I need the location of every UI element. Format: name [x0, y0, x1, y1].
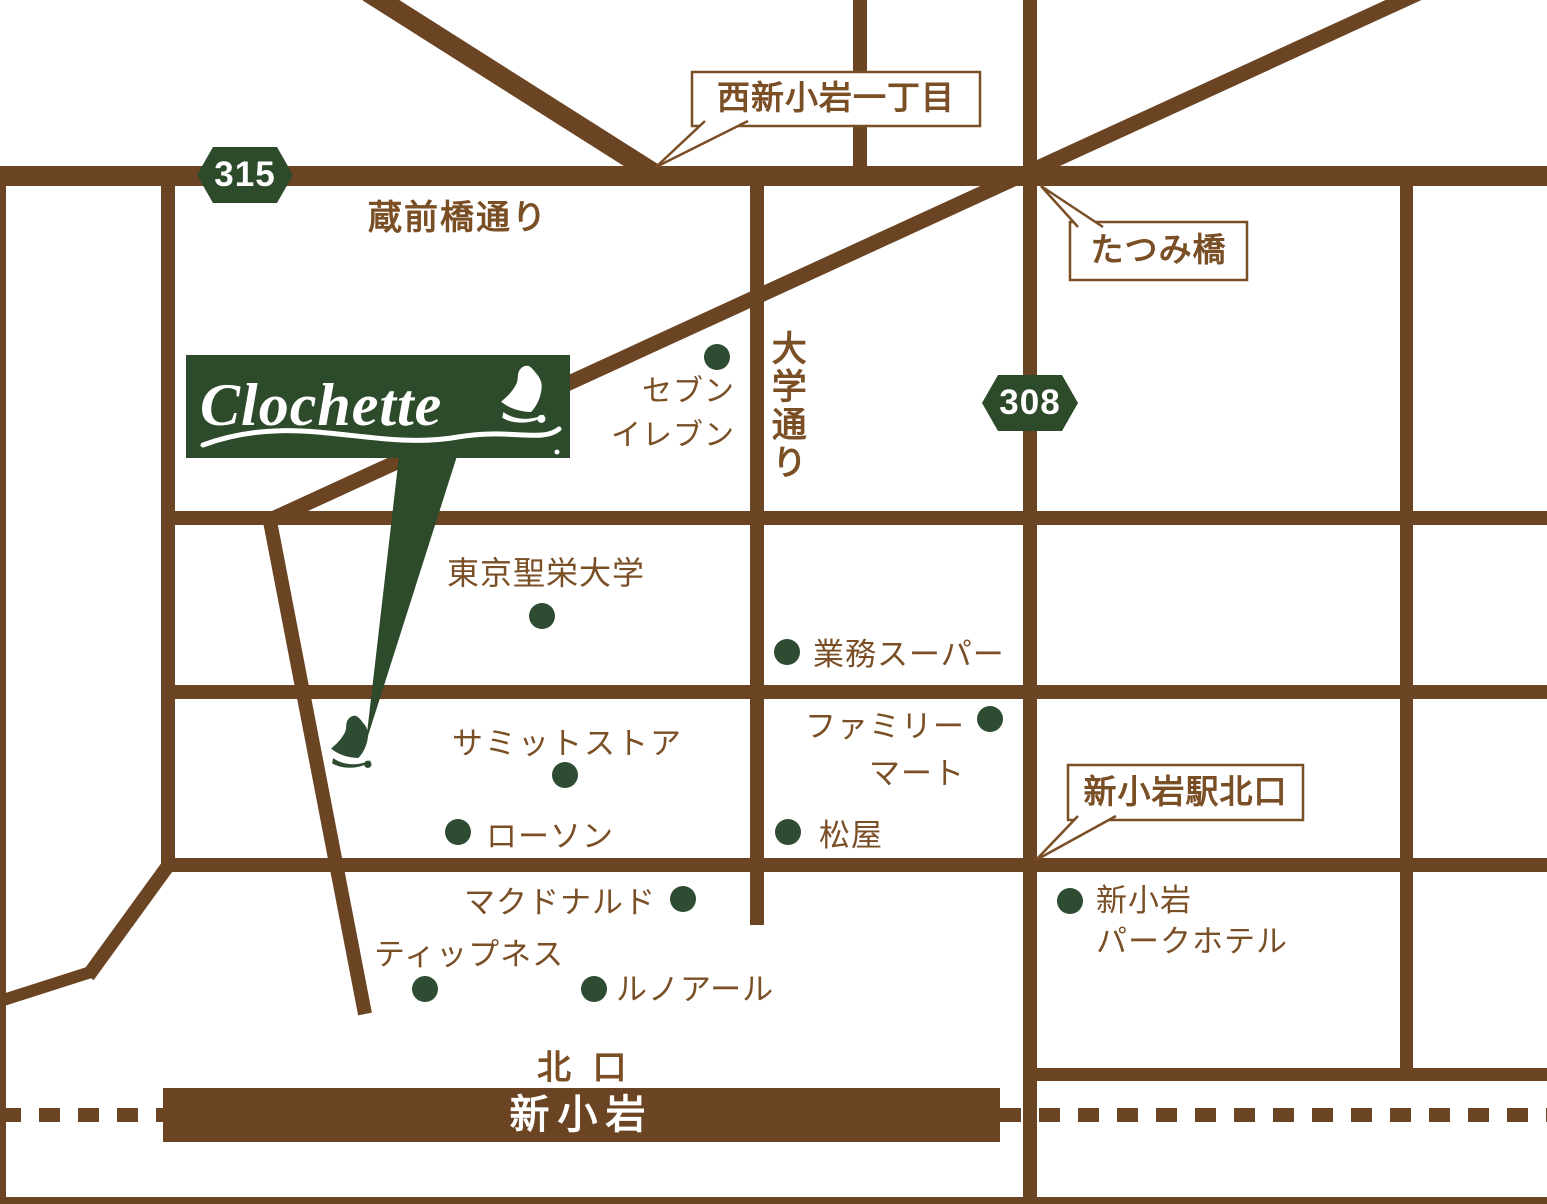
- road-diagonal-top-left: [368, 0, 655, 174]
- access-map: 蔵前橋通り 大学通り 315 308 西新小岩一丁目 たつみ橋 新小岩駅北口 C…: [0, 0, 1547, 1204]
- logo-wordmark: Clochette: [200, 368, 442, 443]
- park-hotel-line1: 新小岩: [1096, 883, 1192, 918]
- landmark-label-lawson: ローソン: [486, 818, 614, 857]
- landmark-label-summit-store: サミットストア: [452, 725, 683, 764]
- seven-eleven-line2: イレブン: [611, 419, 735, 452]
- callout-tail-north-exit: [1036, 816, 1116, 860]
- landmark-label-matsuya: 松屋: [819, 817, 883, 856]
- landmark-label-renoir: ルノアール: [616, 971, 774, 1010]
- landmark-dot-lawson: [445, 819, 471, 845]
- road-bottom-edge: [0, 1197, 1547, 1204]
- road-horizontal-2: [165, 511, 1547, 525]
- station-name: 新小岩: [163, 1088, 1000, 1142]
- landmark-label-gyomu-super: 業務スーパー: [813, 636, 1005, 675]
- road-horizontal-5: [1030, 1068, 1547, 1081]
- landmark-label-tipness: ティップネス: [374, 936, 564, 975]
- landmark-dot-mcdonalds: [670, 886, 696, 912]
- landmark-dot-renoir: [581, 976, 607, 1002]
- logo-dot: [555, 450, 560, 455]
- road-vertical-left: [161, 166, 175, 872]
- landmark-dot-gyomu-super: [774, 639, 800, 665]
- road-bend-lower-left-2: [0, 971, 94, 1003]
- road-left-edge: [0, 166, 6, 1204]
- landmark-dot-tipness: [412, 976, 438, 1002]
- landmark-dot-seven-eleven: [704, 344, 730, 370]
- street-label-kuramaebashi: 蔵前橋通り: [368, 197, 548, 240]
- landmark-dot-family-mart: [977, 706, 1003, 732]
- road-daigaku-dori: [750, 172, 764, 925]
- callout-tail-nishi-shinkoiwa: [656, 121, 748, 167]
- landmark-dot-summit-store: [552, 762, 578, 788]
- street-label-daigaku-dori: 大学通り: [764, 330, 808, 482]
- family-mart-line1: ファミリー: [805, 709, 965, 744]
- landmark-dot-matsuya: [775, 819, 801, 845]
- landmark-dot-park-hotel: [1057, 888, 1083, 914]
- landmark-label-park-hotel: 新小岩 パークホテル: [1096, 881, 1288, 963]
- family-mart-line2: マート: [869, 756, 965, 791]
- route-badge-315: 315: [197, 147, 293, 203]
- callout-label-nishi-shinkoiwa: 西新小岩一丁目: [692, 72, 980, 124]
- landmark-label-tokyo-seiei-univ: 東京聖栄大学: [447, 553, 645, 593]
- logo-pointer: [366, 456, 457, 742]
- park-hotel-line2: パークホテル: [1096, 924, 1288, 959]
- route-badge-308: 308: [982, 375, 1078, 431]
- callout-label-tatsumibashi: たつみ橋: [1070, 222, 1247, 278]
- road-horizontal-4: [165, 858, 1547, 872]
- landmark-dot-tokyo-seiei-univ: [529, 603, 555, 629]
- landmark-label-seven-eleven: セブン イレブン: [595, 370, 735, 457]
- landmark-label-mcdonalds: マクドナルド: [464, 884, 656, 923]
- road-bend-lower-left-1: [88, 863, 170, 976]
- callout-label-north-exit: 新小岩駅北口: [1068, 765, 1303, 818]
- seven-eleven-line1: セブン: [642, 375, 735, 408]
- shop-bell-marker-icon: [331, 716, 371, 768]
- landmark-label-family-mart: ファミリー マート: [805, 704, 965, 797]
- callout-tail-tatsumibashi: [1041, 186, 1103, 227]
- road-vertical-right: [1400, 172, 1413, 1081]
- north-exit-text: 北 口: [537, 1047, 632, 1090]
